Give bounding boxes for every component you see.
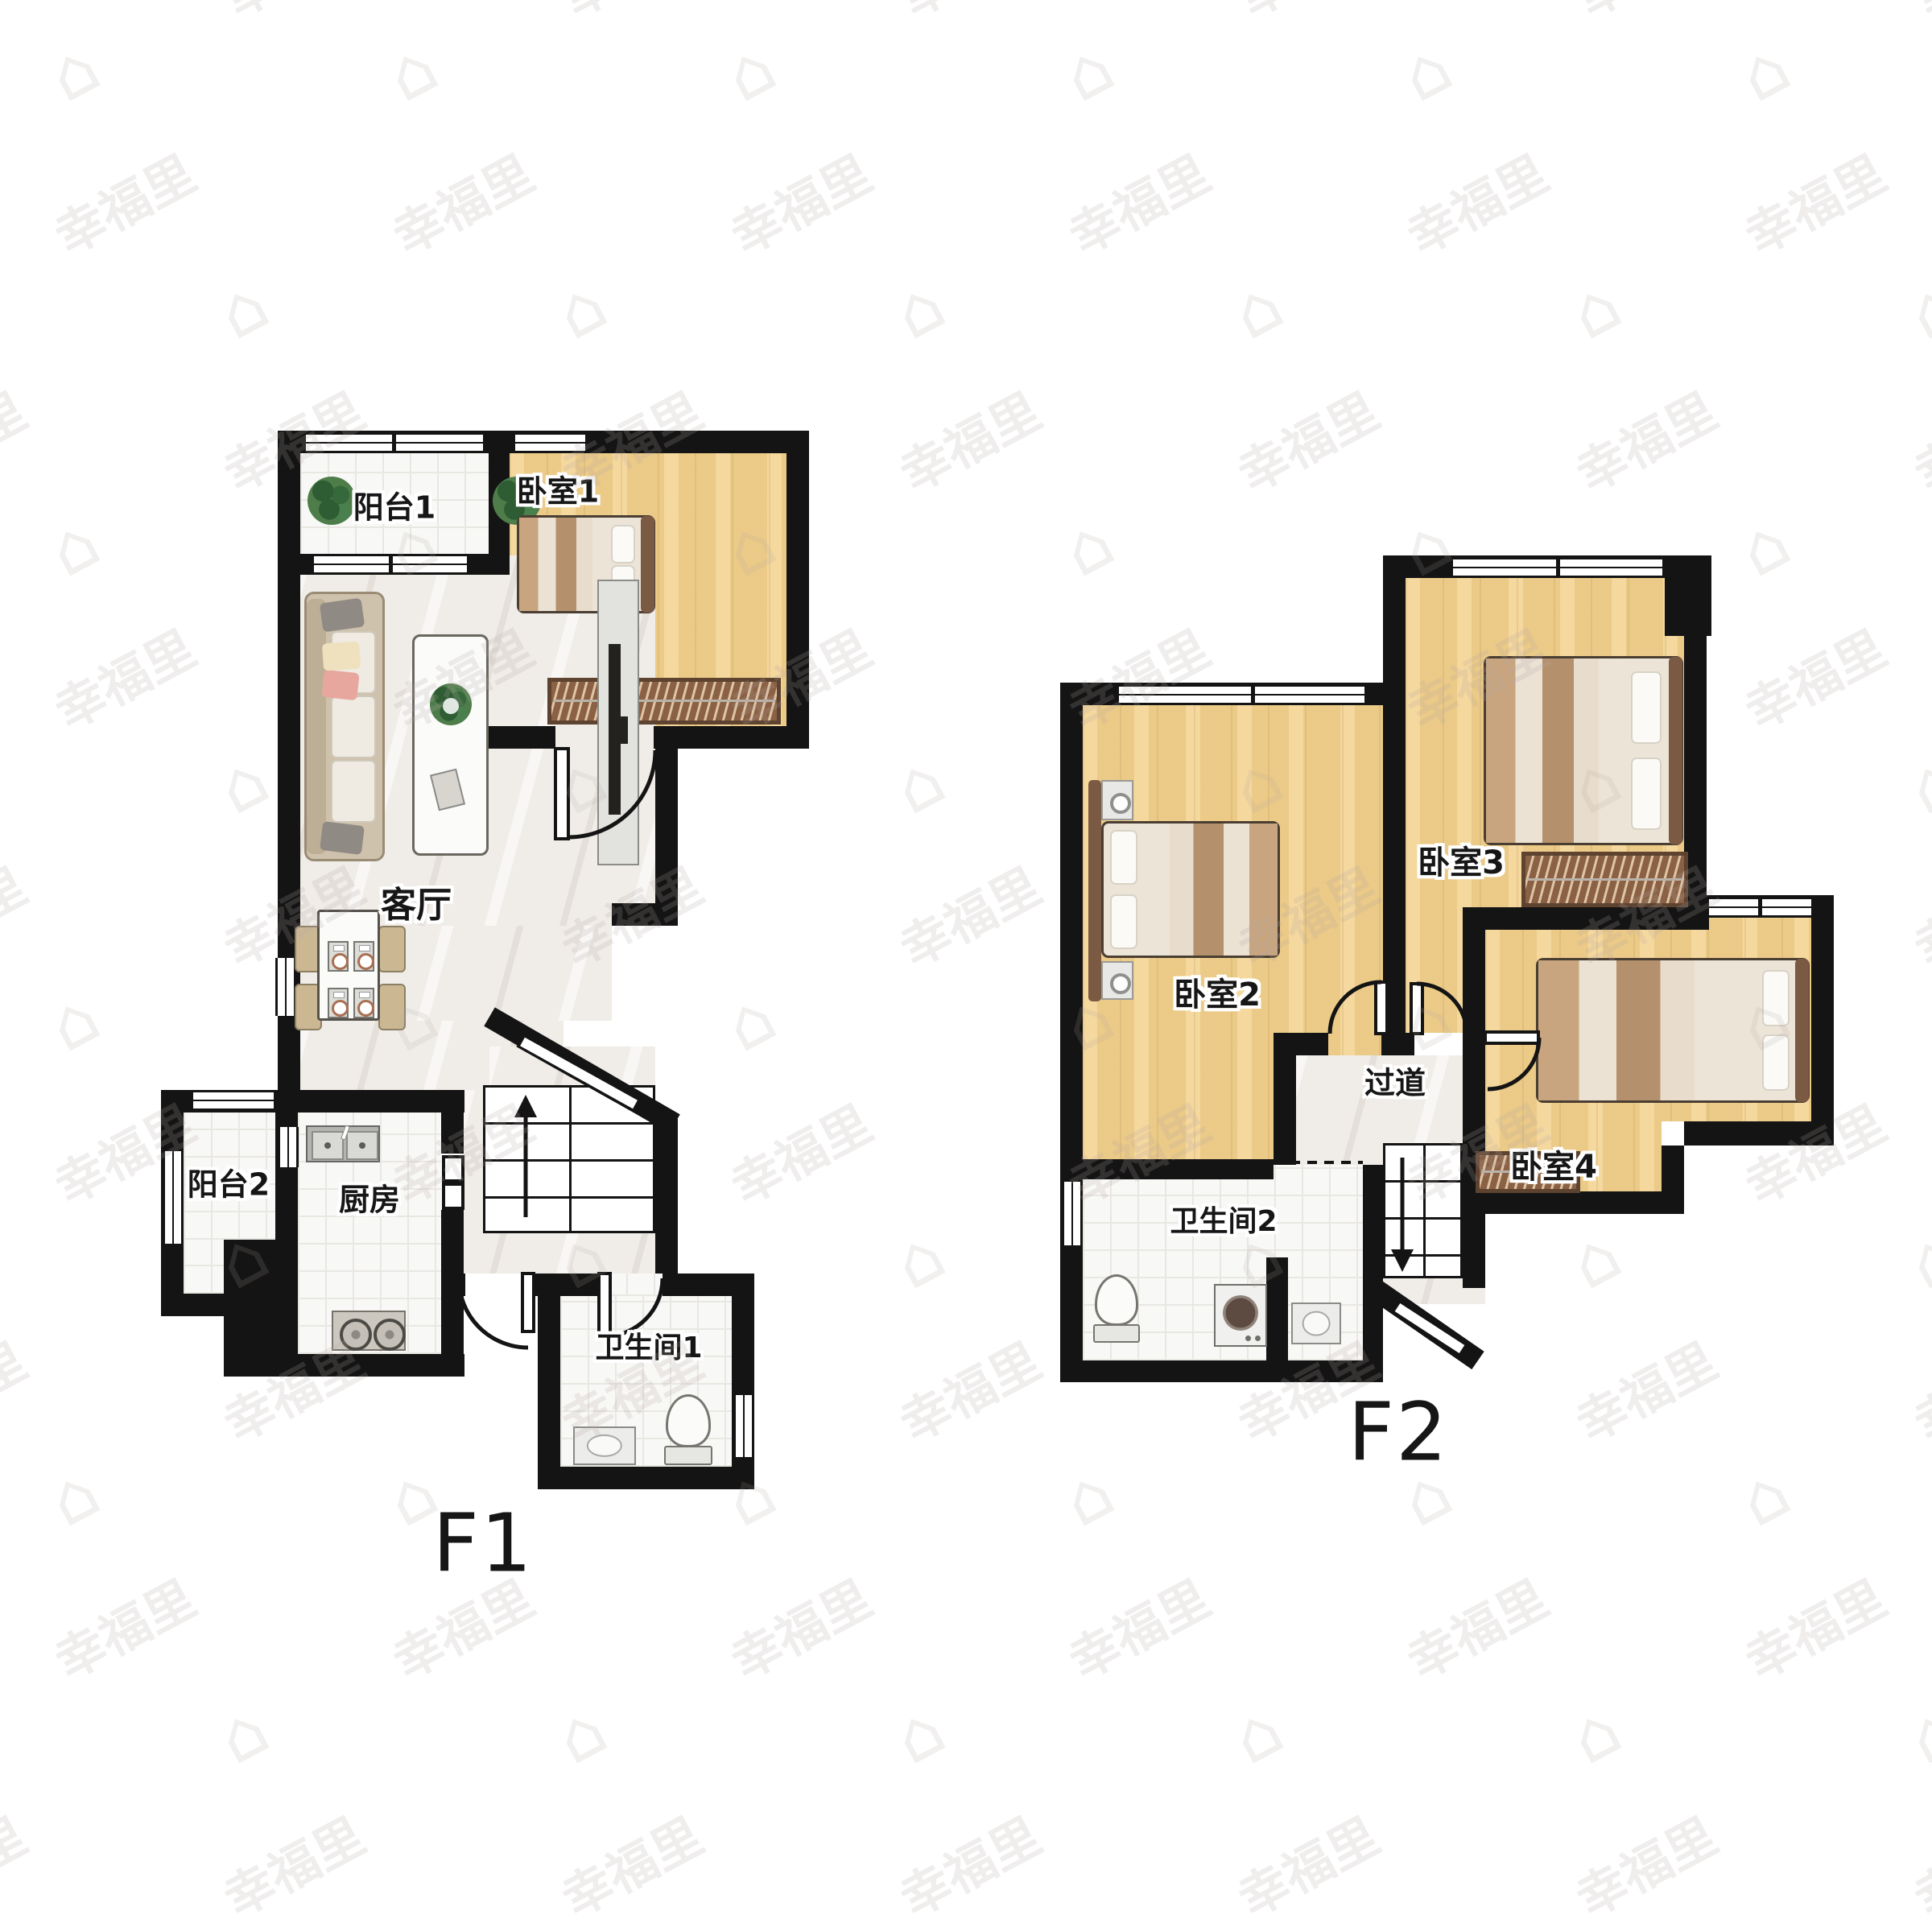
room-label-bedroom1: 卧室1 (517, 467, 599, 511)
wall (1274, 1055, 1296, 1165)
tv-cabinet-icon (597, 580, 639, 865)
window (515, 432, 585, 453)
room-label-bedroom3: 卧室3 (1418, 836, 1505, 883)
watermark-house-icon: ⌂ (1896, 264, 1932, 356)
watermark-house-icon: ⌂ (36, 27, 113, 118)
watermark-text: 幸福里 (1562, 1322, 1728, 1456)
nightstand-icon (1101, 961, 1133, 1000)
nightstand-icon (1101, 780, 1133, 820)
entry-door-arc (459, 1278, 528, 1348)
dining-chair-icon (378, 984, 406, 1030)
wall (441, 1113, 464, 1154)
watermark-house-icon: ⌂ (1727, 1926, 1803, 1932)
wall (538, 1274, 560, 1489)
watermark-text: 幸福里 (1900, 0, 1932, 31)
kitchen-sink-icon (306, 1125, 380, 1162)
window-mullion (1758, 897, 1762, 918)
watermark-house-icon: ⌂ (205, 264, 282, 356)
watermark-house-icon: ⌂ (374, 27, 451, 118)
room-label-bedroom4: 卧室4 (1510, 1141, 1597, 1187)
watermark-text: 幸福里 (0, 847, 37, 981)
wall (786, 431, 809, 749)
door-leaf (444, 1184, 463, 1208)
watermark-text: 幸福里 (40, 609, 206, 744)
watermark-house-icon: ⌂ (36, 1451, 113, 1543)
window (193, 1090, 274, 1111)
window (278, 1127, 299, 1167)
wall (1383, 555, 1406, 1033)
watermark-text: 幸福里 (1731, 609, 1897, 744)
watermark-text: 幸福里 (1224, 372, 1389, 506)
watermark-text: 幸福里 (1731, 1559, 1897, 1694)
watermark-text: 幸福里 (0, 1322, 37, 1456)
watermark-house-icon: ⌂ (1558, 264, 1634, 356)
watermark-house-icon: ⌂ (881, 1214, 958, 1306)
watermark-house-icon: ⌂ (712, 1926, 789, 1932)
washing-machine-icon (1214, 1284, 1267, 1347)
plant-icon (308, 477, 356, 525)
watermark-text: 幸福里 (209, 0, 375, 31)
watermark-text: 幸福里 (716, 1084, 882, 1219)
room-label-bedroom2: 卧室2 (1174, 968, 1261, 1015)
wall (1274, 1033, 1328, 1055)
watermark-text: 幸福里 (1562, 0, 1728, 31)
watermark-text: 幸福里 (40, 1559, 206, 1694)
watermark-text: 幸福里 (0, 0, 37, 31)
watermark-text: 幸福里 (716, 1559, 882, 1694)
window (1062, 1182, 1083, 1245)
watermark-house-icon: ⌂ (543, 1689, 620, 1781)
window (733, 1395, 754, 1457)
watermark-house-icon: ⌂ (1220, 264, 1296, 356)
watermark-house-icon: ⌂ (1051, 27, 1127, 118)
wall (1060, 1360, 1383, 1382)
watermark-house-icon: ⌂ (543, 264, 620, 356)
window (1119, 684, 1364, 705)
window (163, 1151, 184, 1244)
watermark-text: 幸福里 (1731, 134, 1897, 269)
watermark-house-icon: ⌂ (36, 1926, 113, 1932)
window-mullion (1556, 557, 1560, 578)
watermark-house-icon: ⌂ (1389, 27, 1465, 118)
watermark-text: 幸福里 (885, 0, 1051, 31)
room-label-bathroom1: 卫生间1 (595, 1324, 702, 1366)
watermark-house-icon: ⌂ (1727, 502, 1803, 593)
watermark-text: 幸福里 (209, 1797, 375, 1931)
watermark-text: 幸福里 (1224, 1797, 1389, 1931)
watermark-text: 幸福里 (1055, 134, 1220, 269)
bed-headboard (1088, 780, 1101, 1001)
window-mullion (389, 554, 393, 575)
watermark-house-icon: ⌂ (374, 1926, 451, 1932)
watermark-house-icon: ⌂ (1051, 1926, 1127, 1932)
watermark-text: 幸福里 (40, 134, 206, 269)
wall (1665, 555, 1711, 636)
bathroom-sink-icon (1291, 1302, 1341, 1344)
watermark-house-icon: ⌂ (1896, 1214, 1932, 1306)
wall (1381, 1033, 1414, 1055)
watermark-text: 幸福里 (1393, 1559, 1558, 1694)
wall (1811, 895, 1834, 1125)
wall (538, 1467, 754, 1489)
floorplan-canvas: 阳台1 卧室1 客厅 阳台2 厨房 卫生间1 F1 (0, 0, 1932, 1932)
watermark-text: 幸福里 (716, 134, 882, 269)
wall (161, 1294, 224, 1316)
watermark-house-icon: ⌂ (36, 976, 113, 1068)
watermark-house-icon: ⌂ (881, 264, 958, 356)
window-mullion (1251, 684, 1255, 705)
floor-tag-f1: F1 (432, 1496, 533, 1591)
room-label-kitchen: 厨房 (339, 1175, 400, 1220)
watermark-text: 幸福里 (0, 372, 37, 506)
room-floor-bedroom3 (1406, 907, 1463, 1033)
angled-door (1397, 1307, 1462, 1349)
watermark-text: 幸福里 (0, 1797, 37, 1931)
room-label-balcony2: 阳台2 (188, 1160, 270, 1204)
watermark-text: 幸福里 (547, 1797, 713, 1931)
dining-table-icon (317, 910, 380, 1021)
window (275, 958, 296, 1016)
wall (441, 1274, 465, 1296)
floor-tag-f2: F2 (1348, 1385, 1448, 1480)
wall (1463, 907, 1709, 930)
watermark-house-icon: ⌂ (881, 739, 958, 831)
wardrobe-icon (547, 678, 781, 724)
wall (1363, 1165, 1383, 1360)
watermark-text: 幸福里 (1900, 1797, 1932, 1931)
window-mullion (392, 432, 396, 453)
watermark-text: 幸福里 (885, 847, 1051, 981)
watermark-house-icon: ⌂ (1220, 1689, 1296, 1781)
toilet-icon (1093, 1324, 1140, 1343)
stove-icon (332, 1311, 406, 1351)
room-label-bathroom2: 卫生间2 (1170, 1198, 1277, 1240)
watermark-text: 幸福里 (1055, 1559, 1220, 1694)
watermark-house-icon: ⌂ (1558, 1689, 1634, 1781)
watermark-house-icon: ⌂ (1558, 1214, 1634, 1306)
watermark-text: 幸福里 (885, 1797, 1051, 1931)
room-floor-bedroom3 (1406, 578, 1665, 638)
watermark-house-icon: ⌂ (205, 1689, 282, 1781)
watermark-house-icon: ⌂ (1051, 502, 1127, 593)
bed-icon (1536, 958, 1810, 1103)
wall (1266, 1257, 1288, 1360)
watermark-text: 幸福里 (1562, 1797, 1728, 1931)
watermark-text: 幸福里 (547, 0, 713, 31)
wardrobe-icon (1521, 852, 1688, 907)
bed-icon (1484, 656, 1683, 845)
wall (1463, 930, 1485, 1288)
dining-chair-icon (378, 926, 406, 972)
watermark-house-icon: ⌂ (1896, 1689, 1932, 1781)
stairs-icon (1383, 1143, 1463, 1278)
watermark-text: 幸福里 (1393, 134, 1558, 269)
watermark-text: 幸福里 (1900, 372, 1932, 506)
room-floor-bathroom1 (599, 1274, 663, 1296)
watermark-house-icon: ⌂ (1389, 1926, 1465, 1932)
watermark-house-icon: ⌂ (1051, 1451, 1127, 1543)
watermark-house-icon: ⌂ (1727, 1451, 1803, 1543)
wall (1060, 683, 1083, 1382)
watermark-text: 幸福里 (885, 1322, 1051, 1456)
wall (489, 726, 555, 749)
watermark-text: 幸福里 (1562, 372, 1728, 506)
watermark-text: 幸福里 (1900, 847, 1932, 981)
room-label-hallway: 过道 (1364, 1059, 1426, 1103)
wall (275, 1354, 464, 1377)
wall (612, 903, 678, 926)
watermark-text: 幸福里 (885, 372, 1051, 506)
watermark-text: 幸福里 (1224, 0, 1389, 31)
watermark-text: 幸福里 (1900, 1322, 1932, 1456)
room-label-living: 客厅 (381, 876, 452, 927)
watermark-house-icon: ⌂ (36, 502, 113, 593)
watermark-house-icon: ⌂ (712, 27, 789, 118)
angled-door (1396, 1306, 1463, 1351)
room-label-balcony1: 阳台1 (353, 483, 436, 527)
wall (655, 726, 678, 926)
watermark-text: 幸福里 (378, 134, 544, 269)
watermark-house-icon: ⌂ (205, 739, 282, 831)
door-leaf (444, 1157, 463, 1181)
coffee-table-icon (412, 634, 489, 856)
wall (1463, 1191, 1684, 1214)
watermark-house-icon: ⌂ (712, 976, 789, 1068)
wall (655, 1119, 678, 1274)
wall (275, 1090, 464, 1113)
wall (1060, 1159, 1274, 1179)
room-floor-balcony2 (184, 1240, 224, 1294)
bed-icon (1101, 821, 1280, 958)
sofa-icon (304, 592, 385, 861)
watermark-house-icon: ⌂ (881, 1689, 958, 1781)
bathroom-sink-icon (573, 1426, 636, 1465)
wall (1684, 1121, 1834, 1146)
toilet-icon (664, 1446, 712, 1465)
stairs-icon (483, 1085, 655, 1233)
watermark-house-icon: ⌂ (1896, 739, 1932, 831)
watermark-house-icon: ⌂ (1727, 27, 1803, 118)
room-floor-stair-hall (489, 1046, 655, 1090)
